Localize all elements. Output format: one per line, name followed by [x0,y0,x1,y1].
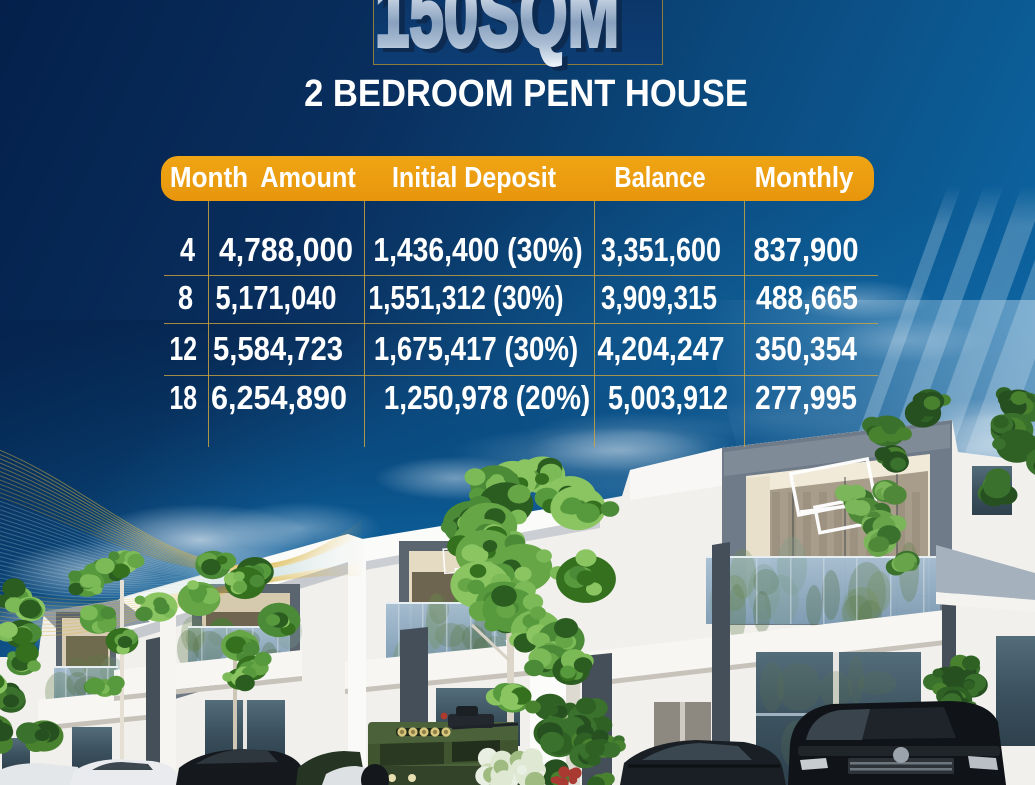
svg-text:150SQM: 150SQM [375,0,619,67]
